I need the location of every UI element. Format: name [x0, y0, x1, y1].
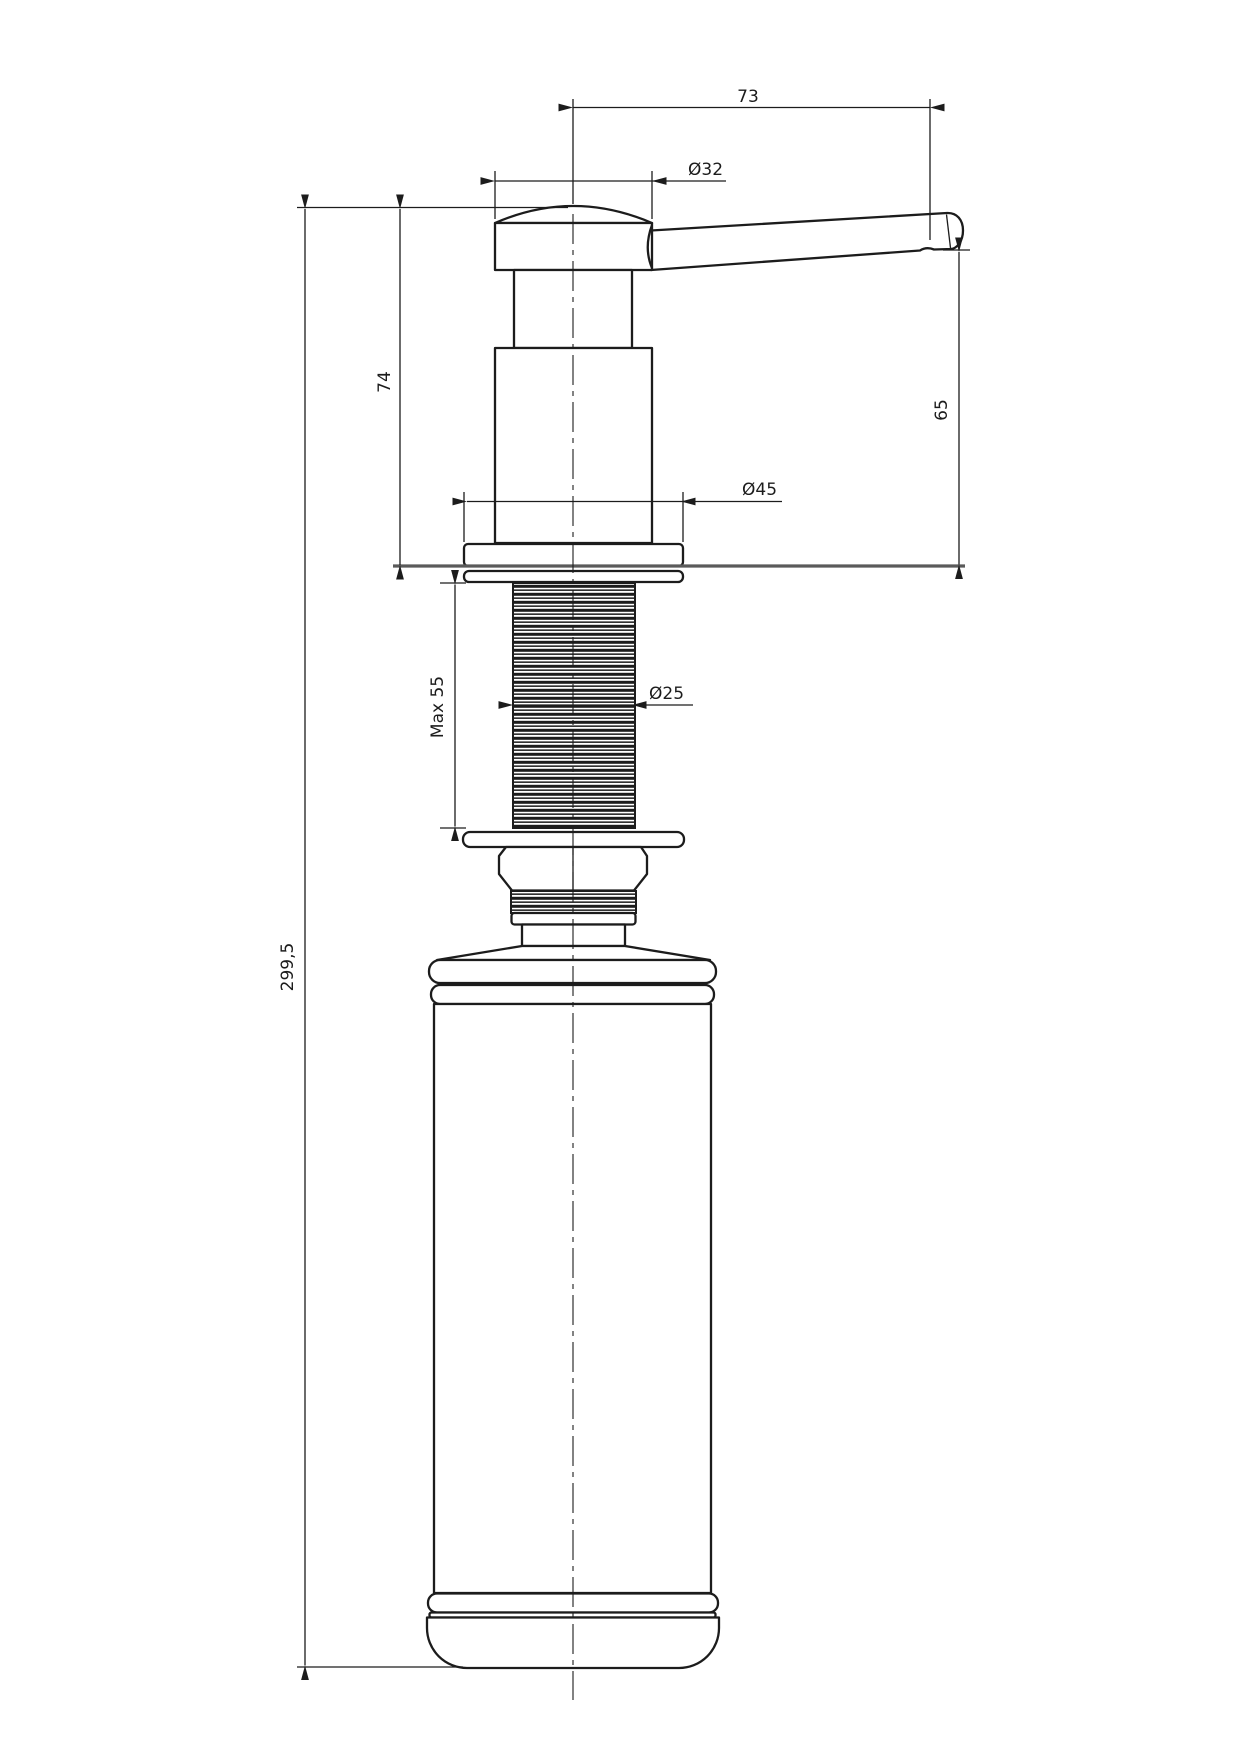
dim-label-thread-diameter: Ø25 [649, 684, 684, 704]
dim-label-lever-reach: 73 [737, 87, 759, 107]
dispenser-technical-drawing: 73 Ø32 74 65 Ø45 Max 55 Ø25 299,5 [0, 0, 1240, 1755]
dim-label-spout-height: 65 [932, 399, 952, 421]
dim-label-head-diameter: Ø32 [688, 160, 723, 180]
dim-label-head-height: 74 [375, 371, 395, 393]
dim-label-total-height: 299,5 [278, 943, 298, 992]
dim-label-max-counter-thickness: Max 55 [428, 676, 448, 738]
drawing-sheet: 73 Ø32 74 65 Ø45 Max 55 Ø25 299,5 [0, 0, 1240, 1755]
dim-label-flange-diameter: Ø45 [742, 480, 777, 500]
